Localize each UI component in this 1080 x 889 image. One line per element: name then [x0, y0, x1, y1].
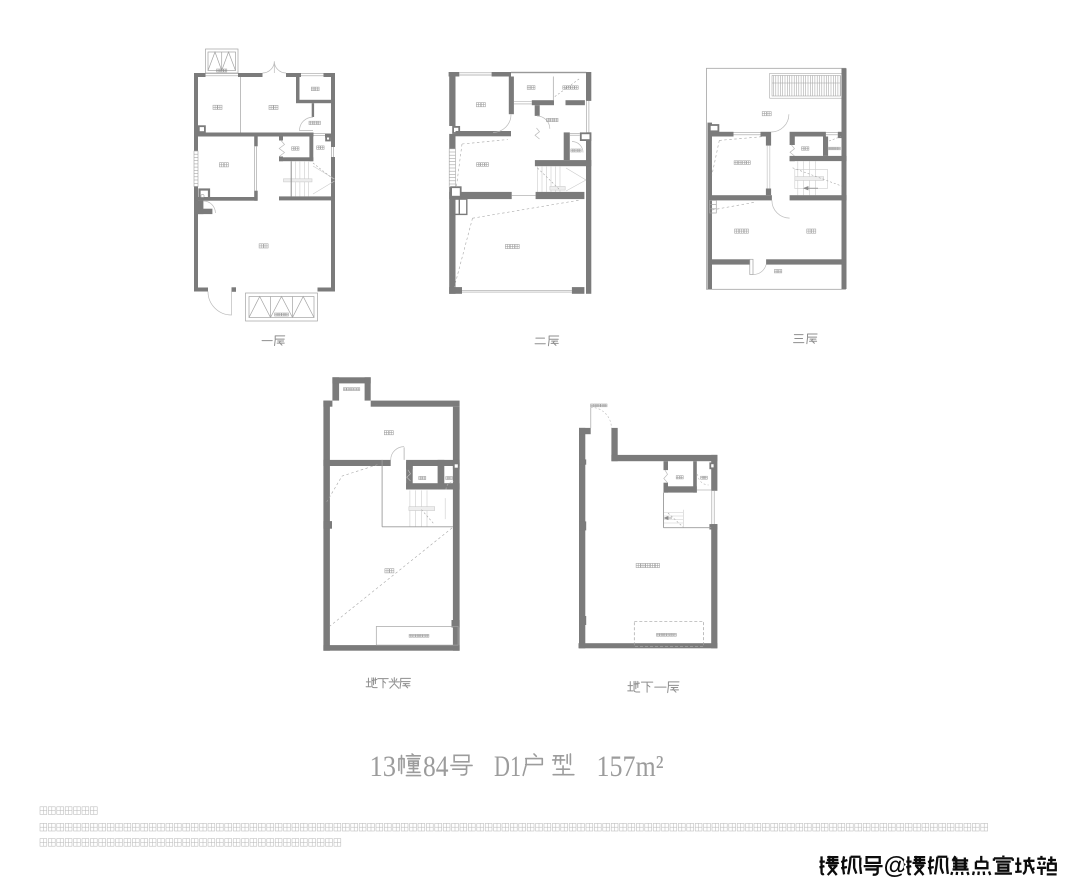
svg-text:@: @: [884, 853, 907, 880]
svg-text:13: 13: [370, 750, 397, 783]
svg-text:84: 84: [423, 750, 449, 783]
svg-text:D1: D1: [494, 750, 521, 783]
svg-text:157m²: 157m²: [597, 750, 664, 783]
